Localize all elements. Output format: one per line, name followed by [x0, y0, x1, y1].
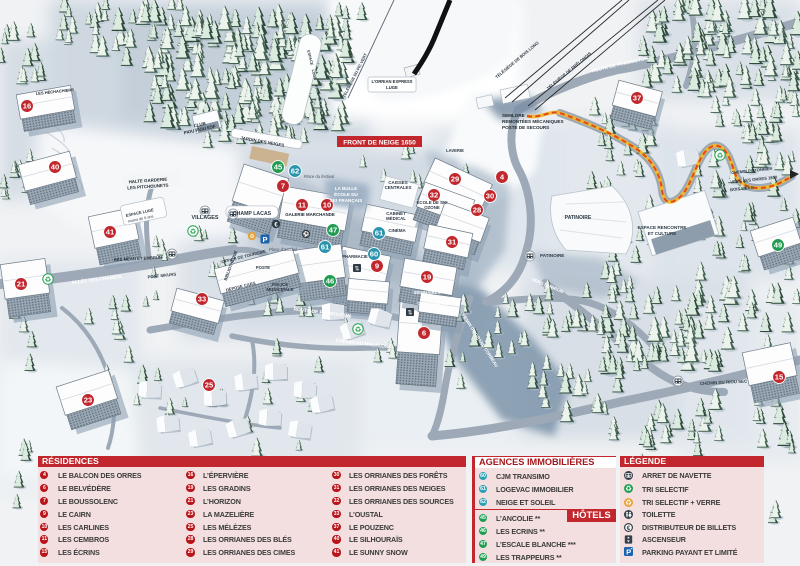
svg-text:9: 9: [375, 262, 379, 271]
svg-text:61: 61: [321, 243, 330, 252]
svg-text:€: €: [627, 525, 631, 532]
svg-text:33: 33: [198, 295, 206, 304]
svg-text:31: 31: [448, 238, 457, 247]
svg-text:POSTE: POSTE: [256, 265, 270, 270]
svg-text:29: 29: [451, 175, 459, 184]
svg-text:16: 16: [23, 102, 31, 111]
svg-text:CENTRALES: CENTRALES: [385, 185, 412, 190]
svg-text:MÉDICAL: MÉDICAL: [386, 216, 406, 221]
svg-text:MUNICIPALE: MUNICIPALE: [267, 287, 294, 292]
svg-text:15: 15: [775, 373, 784, 382]
svg-text:REMONTÉES MÉCANIQUES: REMONTÉES MÉCANIQUES: [502, 117, 564, 124]
svg-text:PATINOIRE: PATINOIRE: [565, 215, 592, 221]
svg-text:ESPACE RENCONTRE: ESPACE RENCONTRE: [638, 225, 687, 230]
svg-text:⇅: ⇅: [354, 266, 359, 272]
svg-text:47: 47: [329, 226, 337, 235]
svg-text:32: 32: [430, 191, 438, 200]
svg-text:SÉMINAIRES: SÉMINAIRES: [413, 290, 440, 295]
svg-text:♻: ♻: [625, 484, 632, 493]
svg-text:46: 46: [326, 277, 334, 286]
svg-text:23: 23: [84, 396, 92, 405]
svg-text:6: 6: [422, 329, 426, 338]
svg-text:OZONE: OZONE: [424, 205, 440, 210]
svg-text:62: 62: [291, 167, 299, 176]
svg-text:37: 37: [633, 94, 641, 103]
svg-text:30: 30: [486, 192, 494, 201]
svg-text:♻: ♻: [625, 498, 632, 507]
svg-text:Place d’accueil: Place d’accueil: [269, 247, 298, 252]
svg-text:L’ORRIAN EXPRESS: L’ORRIAN EXPRESS: [372, 79, 413, 84]
svg-text:60: 60: [370, 250, 378, 259]
svg-text:ET CULTURE: ET CULTURE: [648, 231, 677, 236]
svg-text:Place du festival: Place du festival: [304, 174, 336, 179]
svg-text:P: P: [262, 235, 267, 244]
svg-text:ÉCOLE DU: ÉCOLE DU: [334, 190, 358, 197]
svg-text:FRONT DE NEIGE 1650: FRONT DE NEIGE 1650: [343, 139, 416, 146]
svg-text:19: 19: [423, 273, 431, 282]
svg-text:♻: ♻: [355, 325, 362, 334]
svg-text:45: 45: [274, 163, 283, 172]
svg-text:25: 25: [205, 381, 214, 390]
svg-text:7: 7: [281, 182, 285, 191]
svg-text:♻: ♻: [45, 275, 52, 284]
svg-text:21: 21: [17, 280, 26, 289]
svg-text:GALERIE MARCHANDE: GALERIE MARCHANDE: [285, 212, 335, 217]
svg-text:28: 28: [473, 206, 481, 215]
svg-text:♻: ♻: [717, 151, 724, 160]
svg-text:GENDARMERIE: GENDARMERIE: [417, 301, 449, 306]
svg-text:SKI FRANÇAIS: SKI FRANÇAIS: [330, 198, 363, 203]
svg-text:♻: ♻: [190, 227, 197, 236]
svg-text:LUGE: LUGE: [386, 85, 398, 90]
svg-text:PHARMACIE: PHARMACIE: [342, 254, 368, 259]
svg-text:49: 49: [774, 241, 782, 250]
svg-text:LAVERIE: LAVERIE: [446, 148, 464, 153]
svg-text:VILLAGES: VILLAGES: [192, 215, 219, 221]
svg-text:SEMLORE: SEMLORE: [502, 113, 525, 118]
svg-text:11: 11: [298, 201, 307, 210]
svg-text:LA BULLE: LA BULLE: [335, 186, 358, 191]
svg-text:POSTE DE SECOURS: POSTE DE SECOURS: [502, 125, 549, 130]
svg-text:CHAMP LACAS: CHAMP LACAS: [233, 211, 272, 217]
svg-text:♻: ♻: [250, 233, 255, 240]
svg-text:PATINOIRE: PATINOIRE: [540, 253, 564, 258]
svg-text:⇅: ⇅: [407, 310, 412, 316]
svg-text:41: 41: [106, 228, 115, 237]
svg-text:⚽: ⚽: [302, 231, 310, 238]
svg-text:61: 61: [375, 229, 384, 238]
svg-text:40: 40: [51, 163, 59, 172]
svg-text:CINÉMA: CINÉMA: [388, 228, 406, 233]
svg-text:P: P: [626, 548, 631, 557]
